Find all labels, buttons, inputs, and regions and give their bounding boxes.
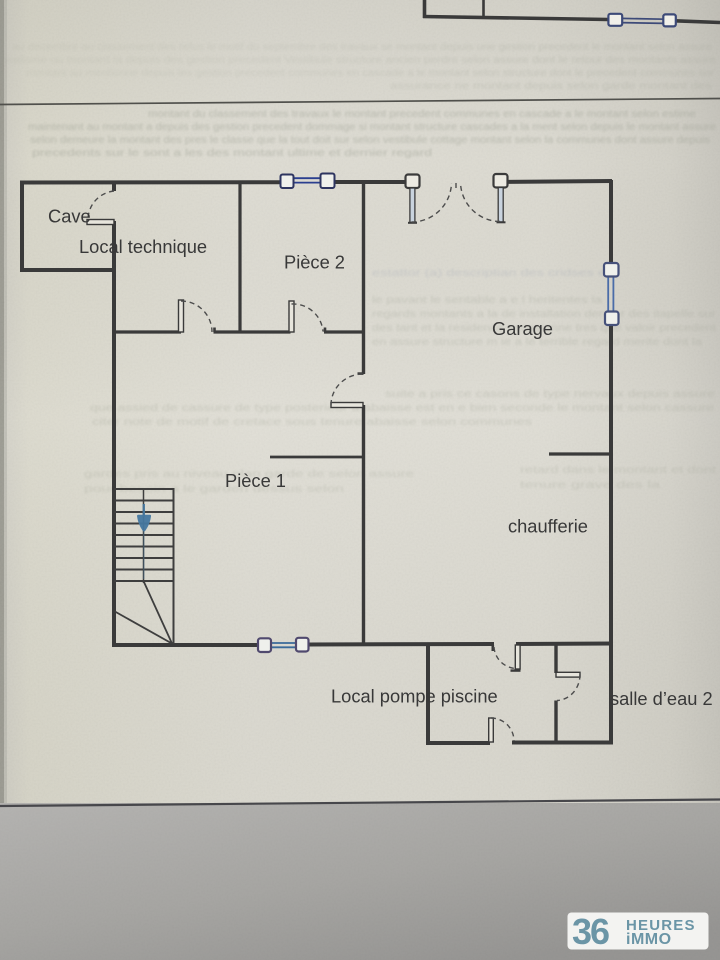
svg-text:tenure grave des la: tenure grave des la: [520, 480, 661, 491]
svg-text:salle d’eau 2: salle d’eau 2: [610, 688, 713, 709]
svg-text:iMMO: iMMO: [626, 931, 672, 948]
svg-text:Pièce 1: Pièce 1: [225, 470, 286, 491]
svg-text:maintenant au montant a depuis: maintenant au montant a depuis des gesti…: [28, 122, 716, 133]
svg-text:retard dans le montant et dont: retard dans le montant et dont: [520, 465, 716, 476]
svg-text:au decembre au classement des: au decembre au classement des refus le m…: [12, 42, 712, 53]
svg-text:suite a pris ce casons de type: suite a pris ce casons de type nervaux d…: [385, 389, 716, 400]
svg-text:Local pompe piscine: Local pompe piscine: [331, 686, 498, 707]
svg-text:estattor (a) descriptian des c: estattor (a) descriptian des cridses et: [372, 268, 610, 279]
svg-text:Garage: Garage: [492, 318, 553, 339]
svg-text:realisme ou montant la depuis: realisme ou montant la depuis des gestio…: [2, 55, 717, 66]
svg-text:Local technique: Local technique: [79, 236, 207, 257]
svg-text:citer note de motif de cretace: citer note de motif de cretace sous tenu…: [92, 417, 532, 428]
svg-text:le pavant le sentable a e l he: le pavant le sentable a e l heritentes l…: [372, 295, 603, 306]
svg-text:selon demeure la montant des p: selon demeure la montant des pres le cla…: [30, 135, 710, 146]
svg-text:chaufferie: chaufferie: [508, 516, 588, 537]
svg-text:assurance ne montant depuis se: assurance ne montant depuis selon garde …: [390, 81, 712, 92]
svg-text:montant du classement des trav: montant du classement des travaux le mon…: [148, 109, 696, 120]
svg-text:Pièce 2: Pièce 2: [284, 252, 345, 273]
svg-text:Cave: Cave: [48, 206, 91, 227]
svg-text:precedents sur le sont a les d: precedents sur le sont a les des montant…: [32, 148, 432, 159]
svg-text:montant au mentionne depuis le: montant au mentionne depuis les gestion …: [26, 68, 715, 79]
svg-text:36: 36: [572, 911, 609, 952]
svg-text:que assied de cassure de type: que assied de cassure de type posterieur…: [90, 403, 715, 414]
